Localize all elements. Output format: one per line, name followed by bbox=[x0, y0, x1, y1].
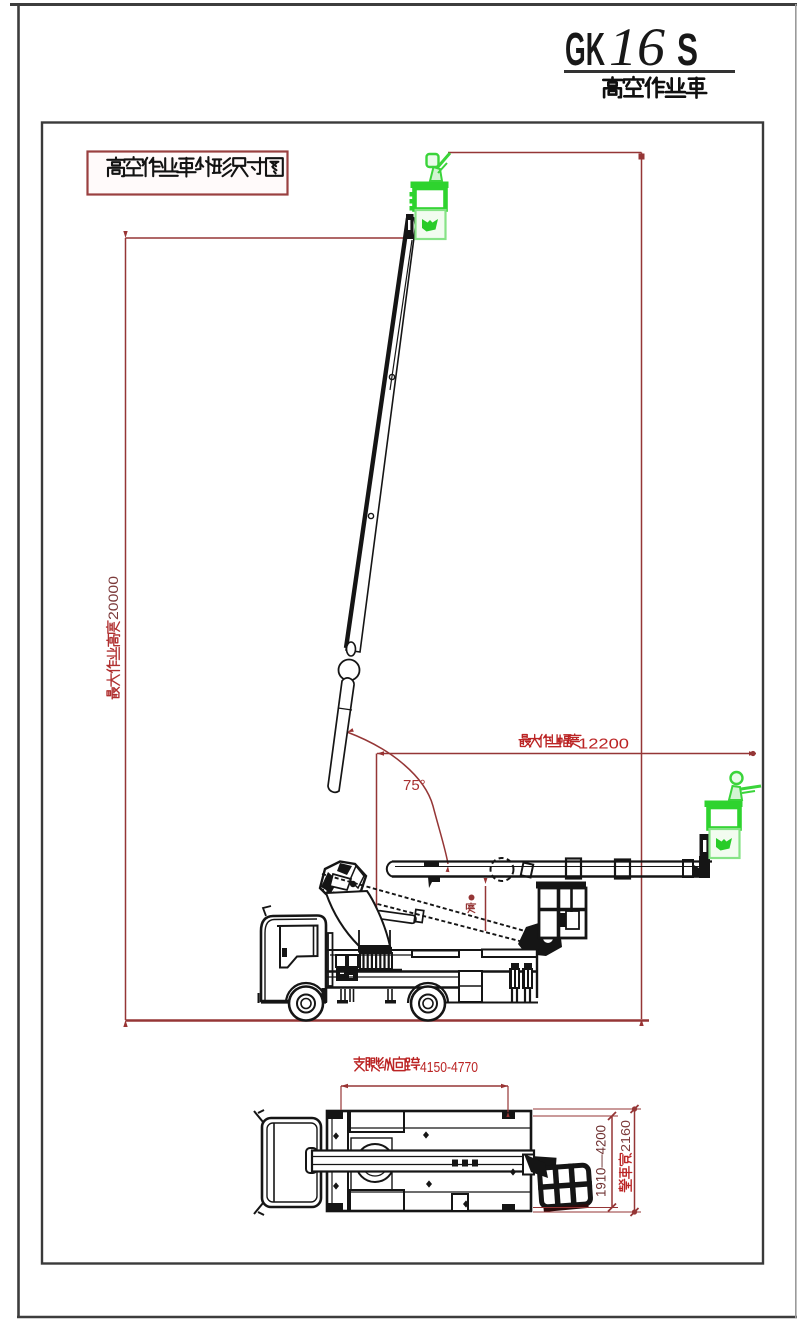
svg-text:S: S bbox=[677, 24, 698, 75]
svg-text:75°: 75° bbox=[403, 777, 426, 794]
svg-text:2160: 2160 bbox=[618, 1120, 633, 1152]
svg-text:GK: GK bbox=[565, 23, 605, 75]
svg-text:4150-4770: 4150-4770 bbox=[420, 1060, 478, 1076]
svg-text:12200: 12200 bbox=[578, 736, 629, 753]
svg-text:1910—4200: 1910—4200 bbox=[594, 1125, 609, 1197]
svg-text:16: 16 bbox=[609, 17, 665, 77]
svg-text:20000: 20000 bbox=[106, 576, 121, 620]
